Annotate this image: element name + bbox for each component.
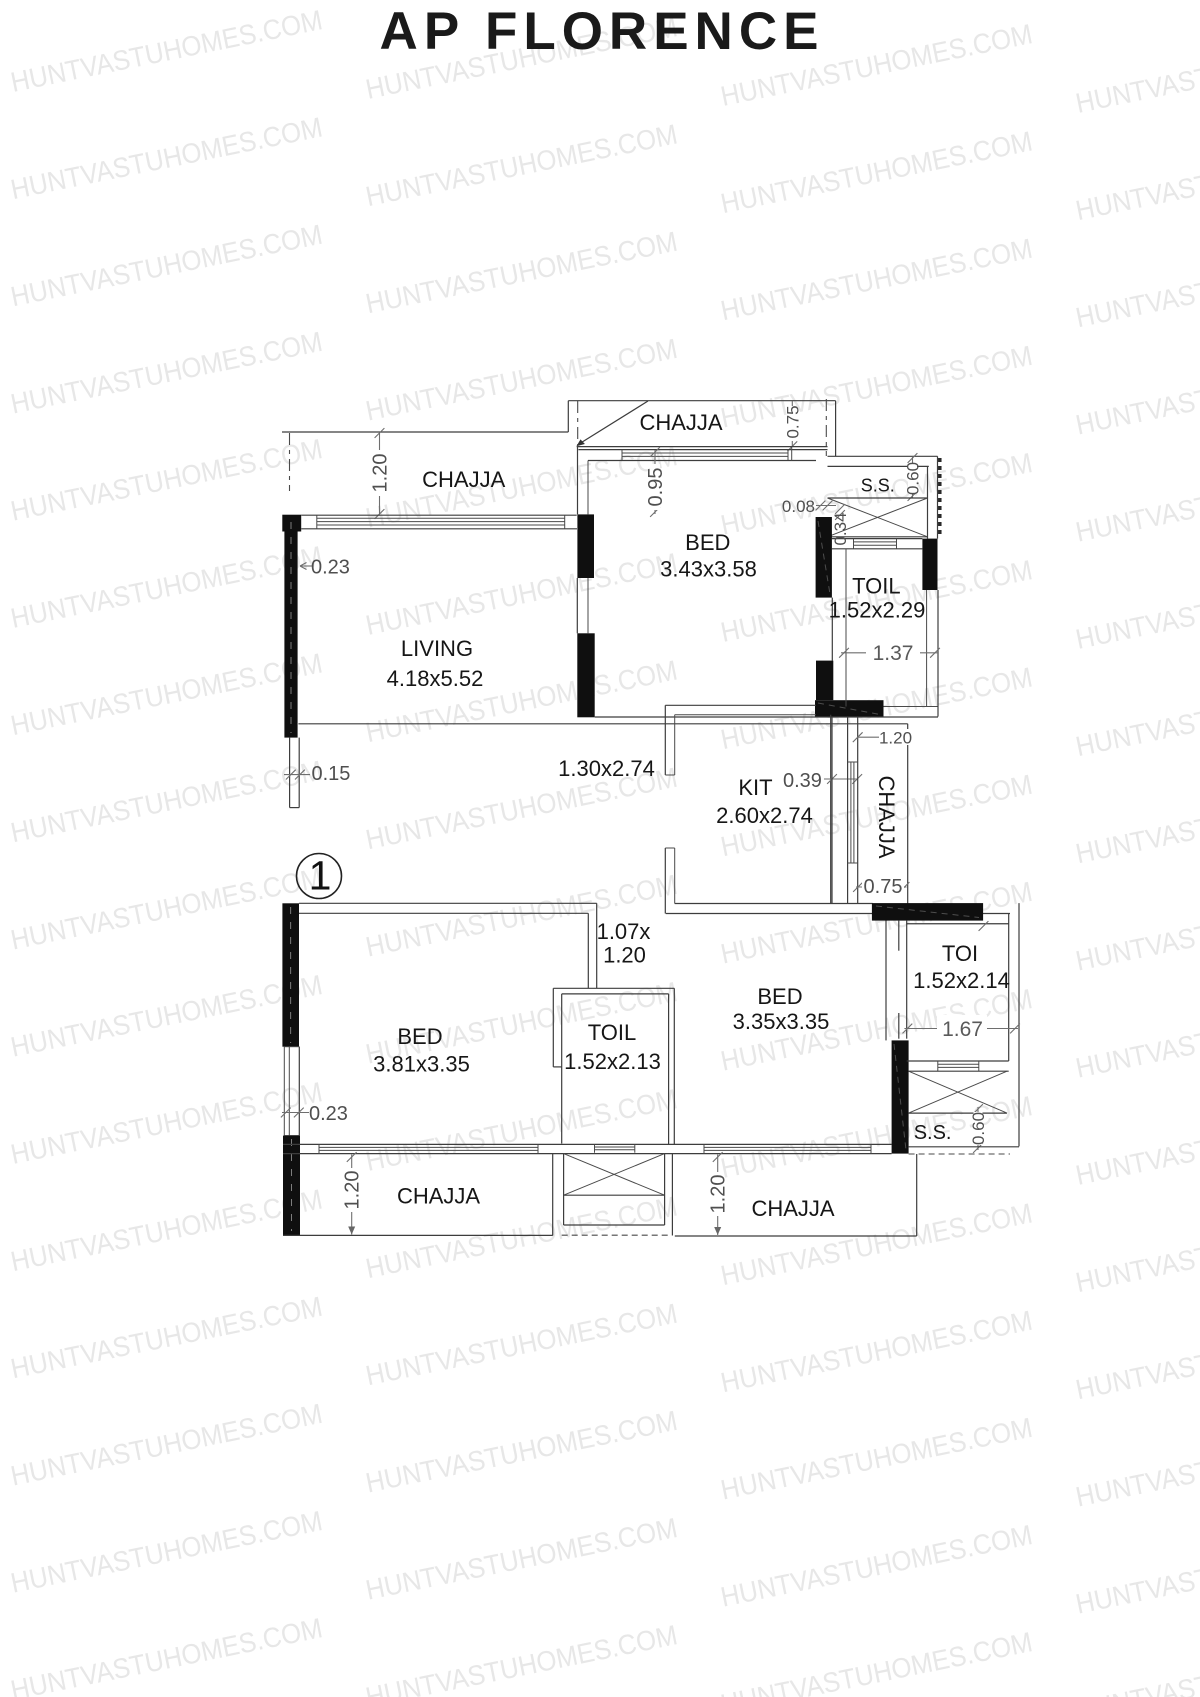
svg-text:HUNTVASTUHOMES.COM: HUNTVASTUHOMES.COM (8, 862, 325, 956)
svg-text:HUNTVASTUHOMES.COM: HUNTVASTUHOMES.COM (8, 112, 325, 206)
svg-text:HUNTVASTUHOMES.COM: HUNTVASTUHOMES.COM (718, 233, 1035, 327)
svg-text:HUNTVASTUHOMES.COM: HUNTVASTUHOMES.COM (8, 433, 325, 527)
svg-text:3.43x3.58: 3.43x3.58 (660, 557, 757, 582)
svg-text:1.20: 1.20 (370, 454, 392, 493)
svg-text:HUNTVASTUHOMES.COM: HUNTVASTUHOMES.COM (363, 1083, 680, 1177)
svg-text:0.08: 0.08 (782, 497, 815, 516)
svg-text:1.20: 1.20 (603, 943, 646, 968)
svg-text:HUNTVASTUHOMES.COM: HUNTVASTUHOMES.COM (1073, 561, 1200, 655)
svg-text:HUNTVASTUHOMES.COM: HUNTVASTUHOMES.COM (1073, 25, 1200, 119)
svg-text:HUNTVASTUHOMES.COM: HUNTVASTUHOMES.COM (1073, 1633, 1200, 1697)
svg-text:HUNTVASTUHOMES.COM: HUNTVASTUHOMES.COM (8, 755, 325, 849)
svg-text:0.60: 0.60 (904, 462, 923, 495)
svg-text:HUNTVASTUHOMES.COM: HUNTVASTUHOMES.COM (1073, 669, 1200, 763)
svg-text:HUNTVASTUHOMES.COM: HUNTVASTUHOMES.COM (718, 1412, 1035, 1506)
svg-text:HUNTVASTUHOMES.COM: HUNTVASTUHOMES.COM (8, 969, 325, 1063)
svg-text:1: 1 (309, 853, 332, 899)
svg-text:HUNTVASTUHOMES.COM: HUNTVASTUHOMES.COM (1073, 883, 1200, 977)
svg-text:3.35x3.35: 3.35x3.35 (733, 1009, 830, 1034)
svg-text:CHAJJA: CHAJJA (397, 1184, 480, 1209)
svg-text:HUNTVASTUHOMES.COM: HUNTVASTUHOMES.COM (363, 1298, 680, 1392)
svg-text:HUNTVASTUHOMES.COM: HUNTVASTUHOMES.COM (1073, 990, 1200, 1084)
svg-text:3.81x3.35: 3.81x3.35 (373, 1052, 470, 1077)
svg-text:HUNTVASTUHOMES.COM: HUNTVASTUHOMES.COM (1073, 1312, 1200, 1406)
svg-text:0.23: 0.23 (309, 1103, 348, 1125)
svg-text:0.39: 0.39 (783, 770, 822, 792)
svg-text:1.20: 1.20 (342, 1171, 364, 1210)
svg-text:HUNTVASTUHOMES.COM: HUNTVASTUHOMES.COM (718, 1626, 1035, 1697)
svg-text:HUNTVASTUHOMES.COM: HUNTVASTUHOMES.COM (1073, 240, 1200, 334)
svg-text:0.95: 0.95 (645, 468, 667, 507)
svg-text:HUNTVASTUHOMES.COM: HUNTVASTUHOMES.COM (1073, 1526, 1200, 1620)
svg-text:HUNTVASTUHOMES.COM: HUNTVASTUHOMES.COM (1073, 347, 1200, 441)
svg-text:0.34: 0.34 (831, 512, 850, 545)
svg-text:HUNTVASTUHOMES.COM: HUNTVASTUHOMES.COM (718, 340, 1035, 434)
svg-text:CHAJJA: CHAJJA (751, 1196, 834, 1221)
svg-text:BED: BED (685, 530, 730, 555)
svg-text:0.15: 0.15 (312, 763, 351, 785)
svg-text:TOIL: TOIL (852, 574, 901, 599)
svg-text:HUNTVASTUHOMES.COM: HUNTVASTUHOMES.COM (718, 1519, 1035, 1613)
svg-text:HUNTVASTUHOMES.COM: HUNTVASTUHOMES.COM (718, 1305, 1035, 1399)
svg-text:2.60x2.74: 2.60x2.74 (716, 803, 813, 828)
svg-text:HUNTVASTUHOMES.COM: HUNTVASTUHOMES.COM (363, 226, 680, 320)
svg-text:HUNTVASTUHOMES.COM: HUNTVASTUHOMES.COM (8, 1505, 325, 1599)
svg-text:1.52x2.29: 1.52x2.29 (829, 598, 926, 623)
svg-text:HUNTVASTUHOMES.COM: HUNTVASTUHOMES.COM (8, 648, 325, 742)
svg-text:CHAJJA: CHAJJA (874, 775, 899, 858)
svg-text:0.75: 0.75 (864, 876, 903, 898)
svg-text:TOI: TOI (942, 941, 978, 966)
svg-text:HUNTVASTUHOMES.COM: HUNTVASTUHOMES.COM (363, 1512, 680, 1606)
svg-text:HUNTVASTUHOMES.COM: HUNTVASTUHOMES.COM (8, 1184, 325, 1278)
svg-text:1.30x2.74: 1.30x2.74 (558, 756, 655, 781)
svg-text:4.18x5.52: 4.18x5.52 (387, 666, 484, 691)
svg-text:1.20: 1.20 (708, 1175, 730, 1214)
svg-text:HUNTVASTUHOMES.COM: HUNTVASTUHOMES.COM (363, 333, 680, 427)
svg-text:BED: BED (757, 984, 802, 1009)
svg-text:HUNTVASTUHOMES.COM: HUNTVASTUHOMES.COM (1073, 133, 1200, 227)
svg-text:KIT: KIT (738, 775, 772, 800)
svg-text:HUNTVASTUHOMES.COM: HUNTVASTUHOMES.COM (8, 219, 325, 313)
svg-text:AP FLORENCE: AP FLORENCE (380, 2, 825, 61)
svg-text:HUNTVASTUHOMES.COM: HUNTVASTUHOMES.COM (1073, 1097, 1200, 1191)
svg-text:HUNTVASTUHOMES.COM: HUNTVASTUHOMES.COM (1073, 454, 1200, 548)
svg-text:1.52x2.14: 1.52x2.14 (913, 968, 1010, 993)
svg-text:0.23: 0.23 (311, 557, 350, 579)
svg-text:0.60: 0.60 (969, 1112, 988, 1145)
svg-text:1.07x: 1.07x (597, 919, 651, 944)
svg-text:HUNTVASTUHOMES.COM: HUNTVASTUHOMES.COM (1073, 1205, 1200, 1299)
svg-text:CHAJJA: CHAJJA (422, 467, 505, 492)
svg-text:HUNTVASTUHOMES.COM: HUNTVASTUHOMES.COM (363, 119, 680, 213)
svg-text:HUNTVASTUHOMES.COM: HUNTVASTUHOMES.COM (363, 1405, 680, 1499)
svg-text:HUNTVASTUHOMES.COM: HUNTVASTUHOMES.COM (8, 1076, 325, 1170)
svg-text:S.S.: S.S. (861, 476, 895, 496)
svg-text:HUNTVASTUHOMES.COM: HUNTVASTUHOMES.COM (8, 326, 325, 420)
svg-text:HUNTVASTUHOMES.COM: HUNTVASTUHOMES.COM (1073, 776, 1200, 870)
svg-text:0.75: 0.75 (784, 405, 803, 438)
svg-text:1.67: 1.67 (942, 1018, 983, 1041)
svg-text:HUNTVASTUHOMES.COM: HUNTVASTUHOMES.COM (718, 126, 1035, 220)
svg-text:HUNTVASTUHOMES.COM: HUNTVASTUHOMES.COM (8, 4, 325, 98)
svg-text:HUNTVASTUHOMES.COM: HUNTVASTUHOMES.COM (1073, 1419, 1200, 1513)
svg-text:BED: BED (397, 1024, 442, 1049)
svg-text:LIVING: LIVING (401, 636, 473, 661)
svg-text:HUNTVASTUHOMES.COM: HUNTVASTUHOMES.COM (8, 1291, 325, 1385)
svg-text:HUNTVASTUHOMES.COM: HUNTVASTUHOMES.COM (363, 440, 680, 534)
svg-text:1.52x2.13: 1.52x2.13 (564, 1049, 661, 1074)
svg-text:HUNTVASTUHOMES.COM: HUNTVASTUHOMES.COM (363, 1619, 680, 1697)
svg-text:HUNTVASTUHOMES.COM: HUNTVASTUHOMES.COM (363, 547, 680, 641)
svg-text:TOIL: TOIL (588, 1020, 637, 1045)
svg-text:HUNTVASTUHOMES.COM: HUNTVASTUHOMES.COM (8, 1612, 325, 1697)
svg-text:1.37: 1.37 (873, 642, 914, 665)
svg-text:1.20: 1.20 (879, 729, 912, 748)
svg-text:S.S.: S.S. (914, 1122, 952, 1144)
svg-text:HUNTVASTUHOMES.COM: HUNTVASTUHOMES.COM (8, 1398, 325, 1492)
svg-text:HUNTVASTUHOMES.COM: HUNTVASTUHOMES.COM (8, 540, 325, 634)
svg-text:CHAJJA: CHAJJA (639, 410, 722, 435)
